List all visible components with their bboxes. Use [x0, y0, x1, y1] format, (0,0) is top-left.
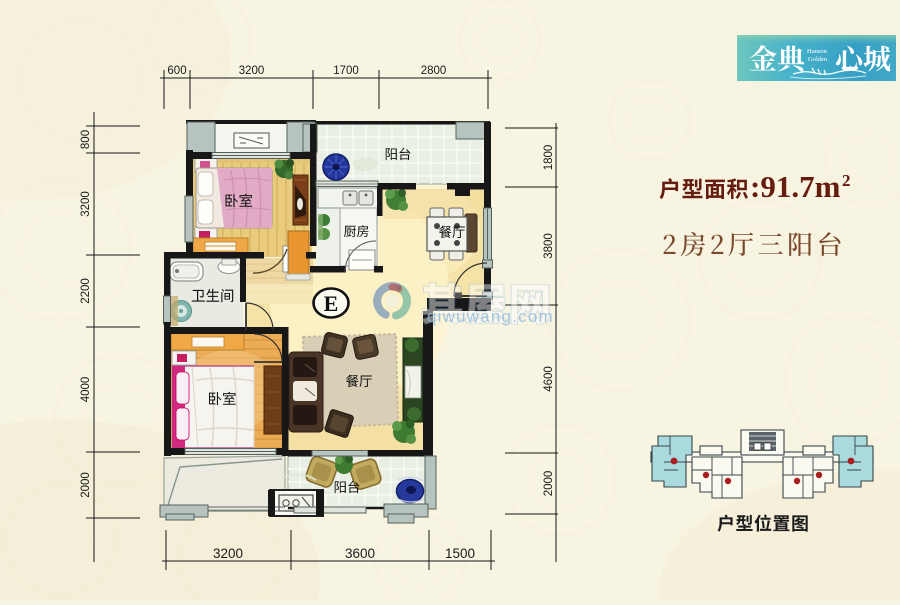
svg-text:2800: 2800	[421, 65, 447, 77]
svg-text:3800: 3800	[543, 233, 555, 259]
svg-text:2000: 2000	[80, 472, 92, 498]
svg-text:600: 600	[167, 65, 186, 77]
svg-text:3600: 3600	[345, 546, 375, 561]
svg-text:2000: 2000	[543, 471, 555, 497]
svg-text:800: 800	[80, 130, 92, 149]
svg-text:4000: 4000	[80, 377, 92, 403]
svg-text:2200: 2200	[80, 278, 92, 304]
svg-text:1500: 1500	[445, 546, 475, 561]
svg-text:Golden: Golden	[808, 56, 828, 63]
svg-text:1700: 1700	[333, 65, 359, 77]
svg-text:3200: 3200	[80, 191, 92, 217]
svg-text:3200: 3200	[213, 546, 243, 561]
svg-text:2: 2	[842, 171, 851, 190]
svg-text:4600: 4600	[543, 366, 555, 392]
svg-text:E: E	[324, 291, 339, 316]
svg-text:3200: 3200	[239, 65, 265, 77]
svg-text:qiwuwang.com: qiwuwang.com	[427, 307, 554, 326]
svg-text::91.7m: :91.7m	[750, 169, 841, 204]
svg-text:1800: 1800	[543, 145, 555, 171]
svg-text:Hanson: Hanson	[807, 48, 828, 55]
